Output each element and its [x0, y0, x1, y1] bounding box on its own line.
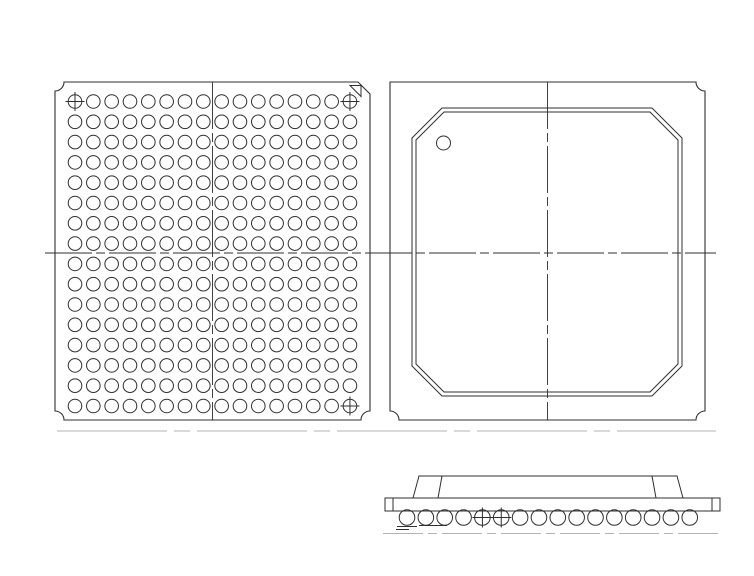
solder-ball-pad [233, 156, 247, 170]
solder-ball-pad [87, 135, 101, 149]
solder-ball-pad [306, 338, 320, 352]
bga-package-drawing [0, 0, 754, 576]
solder-ball-pad [87, 359, 101, 373]
solder-ball-pad [87, 399, 101, 413]
solder-ball-pad [123, 359, 137, 373]
solder-ball-pad [288, 95, 302, 109]
solder-ball-pad [306, 359, 320, 373]
solder-ball-pad [197, 217, 211, 231]
solder-ball-pad [306, 156, 320, 170]
solder-ball-pad [160, 135, 174, 149]
solder-ball-side [682, 510, 698, 526]
solder-ball-pad [178, 156, 192, 170]
solder-ball-pad [160, 237, 174, 251]
solder-ball-pad [105, 359, 119, 373]
solder-ball-pad [178, 95, 192, 109]
solder-ball-pad [160, 156, 174, 170]
solder-ball-pad [306, 379, 320, 393]
solder-ball-pad [160, 95, 174, 109]
solder-ball-pad [68, 359, 82, 373]
solder-ball-pad [160, 115, 174, 129]
solder-ball-pad [68, 318, 82, 332]
solder-ball-pad [306, 399, 320, 413]
solder-ball-pad [87, 217, 101, 231]
solder-ball-pad [270, 95, 284, 109]
solder-ball-pad [270, 217, 284, 231]
solder-ball-pad [178, 338, 192, 352]
mold-chamfer-facet-right [652, 476, 656, 498]
solder-ball-pad [123, 298, 137, 312]
mold-cap-outer-octagon [412, 108, 682, 396]
solder-ball-pad [123, 338, 137, 352]
solder-ball-pad [105, 257, 119, 271]
solder-ball-side [644, 510, 660, 526]
solder-ball-pad [123, 318, 137, 332]
solder-ball-pad [288, 135, 302, 149]
solder-ball-pad [142, 298, 156, 312]
solder-ball-pad [325, 277, 339, 291]
solder-ball-pad [251, 135, 265, 149]
solder-ball-pad [123, 277, 137, 291]
solder-ball-pad [123, 95, 137, 109]
solder-ball-pad [197, 277, 211, 291]
solder-ball-pad [123, 237, 137, 251]
solder-ball-pad [142, 257, 156, 271]
solder-ball-pad [142, 277, 156, 291]
solder-ball-pad [68, 115, 82, 129]
solder-ball-pad [270, 338, 284, 352]
side-view [383, 476, 720, 534]
solder-ball-pad [178, 359, 192, 373]
solder-ball-side [550, 510, 566, 526]
mold-cap-inner-octagon [416, 112, 678, 392]
solder-ball-pad [251, 196, 265, 210]
solder-ball-pad [160, 379, 174, 393]
solder-ball-pad [68, 298, 82, 312]
solder-ball-pad [343, 196, 357, 210]
solder-ball-pad [160, 359, 174, 373]
solder-ball-pad [325, 298, 339, 312]
solder-ball-pad [197, 95, 211, 109]
solder-ball-pad [270, 399, 284, 413]
solder-ball-pad [343, 359, 357, 373]
solder-ball-pad [306, 318, 320, 332]
solder-ball-pad [325, 196, 339, 210]
solder-ball-pad [270, 135, 284, 149]
solder-ball-pad [123, 156, 137, 170]
solder-ball-pad [270, 298, 284, 312]
solder-ball-pad [288, 298, 302, 312]
solder-ball-pad [251, 399, 265, 413]
solder-ball-pad [87, 257, 101, 271]
solder-ball-pad [160, 217, 174, 231]
solder-ball-pad [343, 257, 357, 271]
solder-ball-pad [288, 379, 302, 393]
solder-ball-pad [343, 156, 357, 170]
solder-ball-pad [343, 277, 357, 291]
solder-ball-pad [270, 176, 284, 190]
solder-ball-pad [215, 359, 229, 373]
solder-ball-pad [197, 318, 211, 332]
solder-ball-pad [178, 277, 192, 291]
solder-ball-pad [142, 135, 156, 149]
solder-ball-pad [343, 298, 357, 312]
solder-ball-pad [178, 135, 192, 149]
solder-ball-pad [87, 338, 101, 352]
solder-ball-pad [325, 115, 339, 129]
solder-ball-pad [270, 156, 284, 170]
solder-ball-pad [251, 95, 265, 109]
solder-ball-pad [251, 338, 265, 352]
solder-ball-pad [160, 298, 174, 312]
solder-ball-pad [270, 237, 284, 251]
solder-ball-pad [306, 298, 320, 312]
solder-ball-pad [306, 95, 320, 109]
solder-ball-pad [233, 277, 247, 291]
solder-ball-pad [288, 338, 302, 352]
solder-ball-pad [68, 257, 82, 271]
top-view [390, 82, 705, 420]
solder-ball-pad [325, 257, 339, 271]
solder-ball-pad [68, 135, 82, 149]
solder-ball-pad [197, 379, 211, 393]
solder-ball-pad [123, 257, 137, 271]
solder-ball-pad [288, 359, 302, 373]
solder-ball-pad [142, 196, 156, 210]
solder-ball-side [512, 510, 528, 526]
solder-ball-pad [160, 176, 174, 190]
solder-ball-pad [325, 237, 339, 251]
solder-ball-pad [105, 95, 119, 109]
solder-ball-pad [160, 338, 174, 352]
solder-ball-pad [325, 399, 339, 413]
solder-ball-pad [306, 115, 320, 129]
solder-ball-pad [270, 257, 284, 271]
solder-ball-pad [288, 115, 302, 129]
solder-ball-pad [123, 217, 137, 231]
solder-ball-pad [105, 115, 119, 129]
solder-ball-pad [343, 115, 357, 129]
solder-ball-pad [178, 298, 192, 312]
solder-ball-side [625, 510, 641, 526]
solder-ball-pad [87, 115, 101, 129]
solder-ball-pad [215, 115, 229, 129]
solder-ball-pad [87, 237, 101, 251]
solder-ball-pad [215, 95, 229, 109]
solder-ball-pad [142, 176, 156, 190]
substrate-bar [385, 498, 720, 511]
solder-ball-pad [233, 257, 247, 271]
solder-ball-pad [142, 156, 156, 170]
solder-ball-pad [105, 196, 119, 210]
solder-ball-pad [233, 298, 247, 312]
solder-ball-pad [105, 277, 119, 291]
solder-ball-pad [270, 115, 284, 129]
solder-ball-pad [251, 298, 265, 312]
solder-ball-pad [325, 176, 339, 190]
solder-ball-pad [215, 277, 229, 291]
solder-ball-pad [233, 338, 247, 352]
solder-ball-pad [87, 277, 101, 291]
solder-ball-pad [105, 399, 119, 413]
solder-ball-pad [197, 298, 211, 312]
solder-ball-pad [251, 156, 265, 170]
solder-ball-pad [142, 237, 156, 251]
solder-ball-pad [105, 237, 119, 251]
solder-ball-pad [306, 135, 320, 149]
solder-ball-pad [233, 196, 247, 210]
solder-ball-pad [233, 237, 247, 251]
solder-ball-pad [215, 298, 229, 312]
solder-ball-pad [306, 176, 320, 190]
drawing-canvas [0, 0, 754, 576]
solder-ball-pad [288, 237, 302, 251]
solder-ball-pad [197, 257, 211, 271]
solder-ball-pad [87, 298, 101, 312]
solder-ball-pad [215, 399, 229, 413]
solder-ball-pad [123, 379, 137, 393]
solder-ball-side [399, 510, 415, 526]
solder-ball-pad [215, 217, 229, 231]
solder-ball-pad [325, 217, 339, 231]
solder-ball-pad [68, 379, 82, 393]
solder-ball-pad [251, 115, 265, 129]
solder-ball-pad [288, 176, 302, 190]
solder-ball-pad [178, 237, 192, 251]
mold-chamfer-facet-left [438, 476, 442, 498]
solder-ball-side [663, 510, 679, 526]
solder-ball-pad [215, 176, 229, 190]
solder-ball-pad [68, 399, 82, 413]
solder-ball-pad [87, 95, 101, 109]
solder-ball-pad [197, 399, 211, 413]
solder-ball-pad [325, 318, 339, 332]
solder-ball-pad [251, 277, 265, 291]
solder-ball-pad [197, 176, 211, 190]
solder-ball-pad [123, 135, 137, 149]
solder-ball-pad [270, 277, 284, 291]
solder-ball-pad [343, 318, 357, 332]
solder-ball-pad [233, 359, 247, 373]
solder-ball-pad [142, 379, 156, 393]
solder-ball-pad [306, 277, 320, 291]
solder-ball-pad [178, 115, 192, 129]
solder-ball-pad [270, 359, 284, 373]
solder-ball-side [531, 510, 547, 526]
solder-ball-pad [123, 115, 137, 129]
solder-ball-pad [160, 196, 174, 210]
solder-ball-pad [306, 237, 320, 251]
solder-ball-pad [215, 338, 229, 352]
solder-ball-pad [178, 196, 192, 210]
solder-ball-pad [87, 379, 101, 393]
solder-ball-pad [87, 176, 101, 190]
solder-ball-pad [215, 257, 229, 271]
solder-ball-pad [325, 156, 339, 170]
solder-ball-pad [178, 217, 192, 231]
solder-ball-pad [87, 156, 101, 170]
solder-ball-pad [325, 379, 339, 393]
solder-ball-pad [233, 135, 247, 149]
solder-ball-pad [233, 115, 247, 129]
solder-ball-pad [215, 318, 229, 332]
solder-ball-pad [68, 156, 82, 170]
solder-ball-pad [215, 237, 229, 251]
solder-ball-pad [142, 95, 156, 109]
solder-ball-pad [68, 176, 82, 190]
solder-ball-pad [215, 196, 229, 210]
solder-ball-pad [215, 156, 229, 170]
solder-ball-pad [343, 379, 357, 393]
solder-ball-pad [123, 196, 137, 210]
solder-ball-side [569, 510, 585, 526]
solder-ball-pad [68, 217, 82, 231]
solder-ball-pad [160, 399, 174, 413]
solder-ball-pad [270, 379, 284, 393]
solder-ball-pad [325, 359, 339, 373]
solder-ball-pad [343, 176, 357, 190]
solder-ball-pad [343, 237, 357, 251]
solder-ball-pad [123, 399, 137, 413]
solder-ball-pad [68, 277, 82, 291]
solder-ball-pad [105, 217, 119, 231]
solder-ball-pad [306, 196, 320, 210]
solder-ball-pad [178, 379, 192, 393]
solder-ball-pad [105, 298, 119, 312]
solder-ball-pad [197, 237, 211, 251]
solder-ball-side [437, 510, 453, 526]
solder-ball-pad [197, 115, 211, 129]
solder-ball-pad [105, 379, 119, 393]
solder-ball-pad [123, 176, 137, 190]
solder-ball-pad [288, 217, 302, 231]
solder-ball-pad [343, 135, 357, 149]
solder-ball-pad [160, 257, 174, 271]
solder-ball-pad [68, 338, 82, 352]
solder-ball-pad [178, 176, 192, 190]
solder-ball-pad [142, 318, 156, 332]
solder-ball-pad [233, 399, 247, 413]
solder-ball-pad [251, 176, 265, 190]
solder-ball-pad [233, 176, 247, 190]
solder-ball-pad [87, 196, 101, 210]
solder-ball-pad [215, 135, 229, 149]
solder-ball-side [418, 510, 434, 526]
solder-ball-pad [251, 237, 265, 251]
solder-ball-pad [325, 95, 339, 109]
solder-ball-pad [105, 318, 119, 332]
solder-ball-pad [251, 257, 265, 271]
solder-ball-pad [105, 338, 119, 352]
solder-ball-pad [142, 359, 156, 373]
solder-ball-pad [68, 196, 82, 210]
solder-ball-pad [105, 176, 119, 190]
solder-ball-pad [251, 217, 265, 231]
solder-ball-pad [288, 156, 302, 170]
solder-ball-pad [87, 318, 101, 332]
mold-cap-profile [413, 476, 683, 498]
solder-ball-pad [288, 399, 302, 413]
solder-ball-pad [197, 196, 211, 210]
solder-ball-pad [288, 318, 302, 332]
solder-ball-pad [233, 318, 247, 332]
solder-ball-pad [197, 338, 211, 352]
solder-ball-pad [288, 257, 302, 271]
solder-ball-pad [197, 156, 211, 170]
solder-ball-pad [233, 95, 247, 109]
solder-ball-pad [343, 217, 357, 231]
solder-ball-pad [233, 217, 247, 231]
solder-ball-pad [160, 277, 174, 291]
solder-ball-side [588, 510, 604, 526]
solder-ball-pad [142, 338, 156, 352]
solder-ball-pad [160, 318, 174, 332]
solder-ball-pad [251, 379, 265, 393]
bottom-view [55, 82, 370, 420]
solder-ball-pad [288, 277, 302, 291]
solder-ball-pad [233, 379, 247, 393]
solder-ball-pad [325, 135, 339, 149]
solder-ball-pad [197, 359, 211, 373]
solder-ball-pad [215, 379, 229, 393]
solder-ball-side [607, 510, 623, 526]
solder-ball-pad [105, 135, 119, 149]
solder-ball-pad [251, 359, 265, 373]
solder-ball-pad [178, 318, 192, 332]
solder-ball-pad [270, 318, 284, 332]
solder-ball-pad [197, 135, 211, 149]
solder-ball-pad [142, 115, 156, 129]
solder-ball-pad [68, 237, 82, 251]
solder-ball-pad [306, 257, 320, 271]
solder-ball-pad [270, 196, 284, 210]
solder-ball-pad [142, 217, 156, 231]
solder-ball-pad [251, 318, 265, 332]
solder-ball-side [456, 510, 472, 526]
solder-ball-pad [105, 156, 119, 170]
solder-ball-pad [178, 399, 192, 413]
solder-ball-pad [178, 257, 192, 271]
solder-ball-pad [288, 196, 302, 210]
pin1-indicator-circle [437, 136, 451, 150]
solder-ball-pad [306, 217, 320, 231]
solder-ball-pad [325, 338, 339, 352]
solder-ball-pad [142, 399, 156, 413]
solder-ball-pad [343, 338, 357, 352]
